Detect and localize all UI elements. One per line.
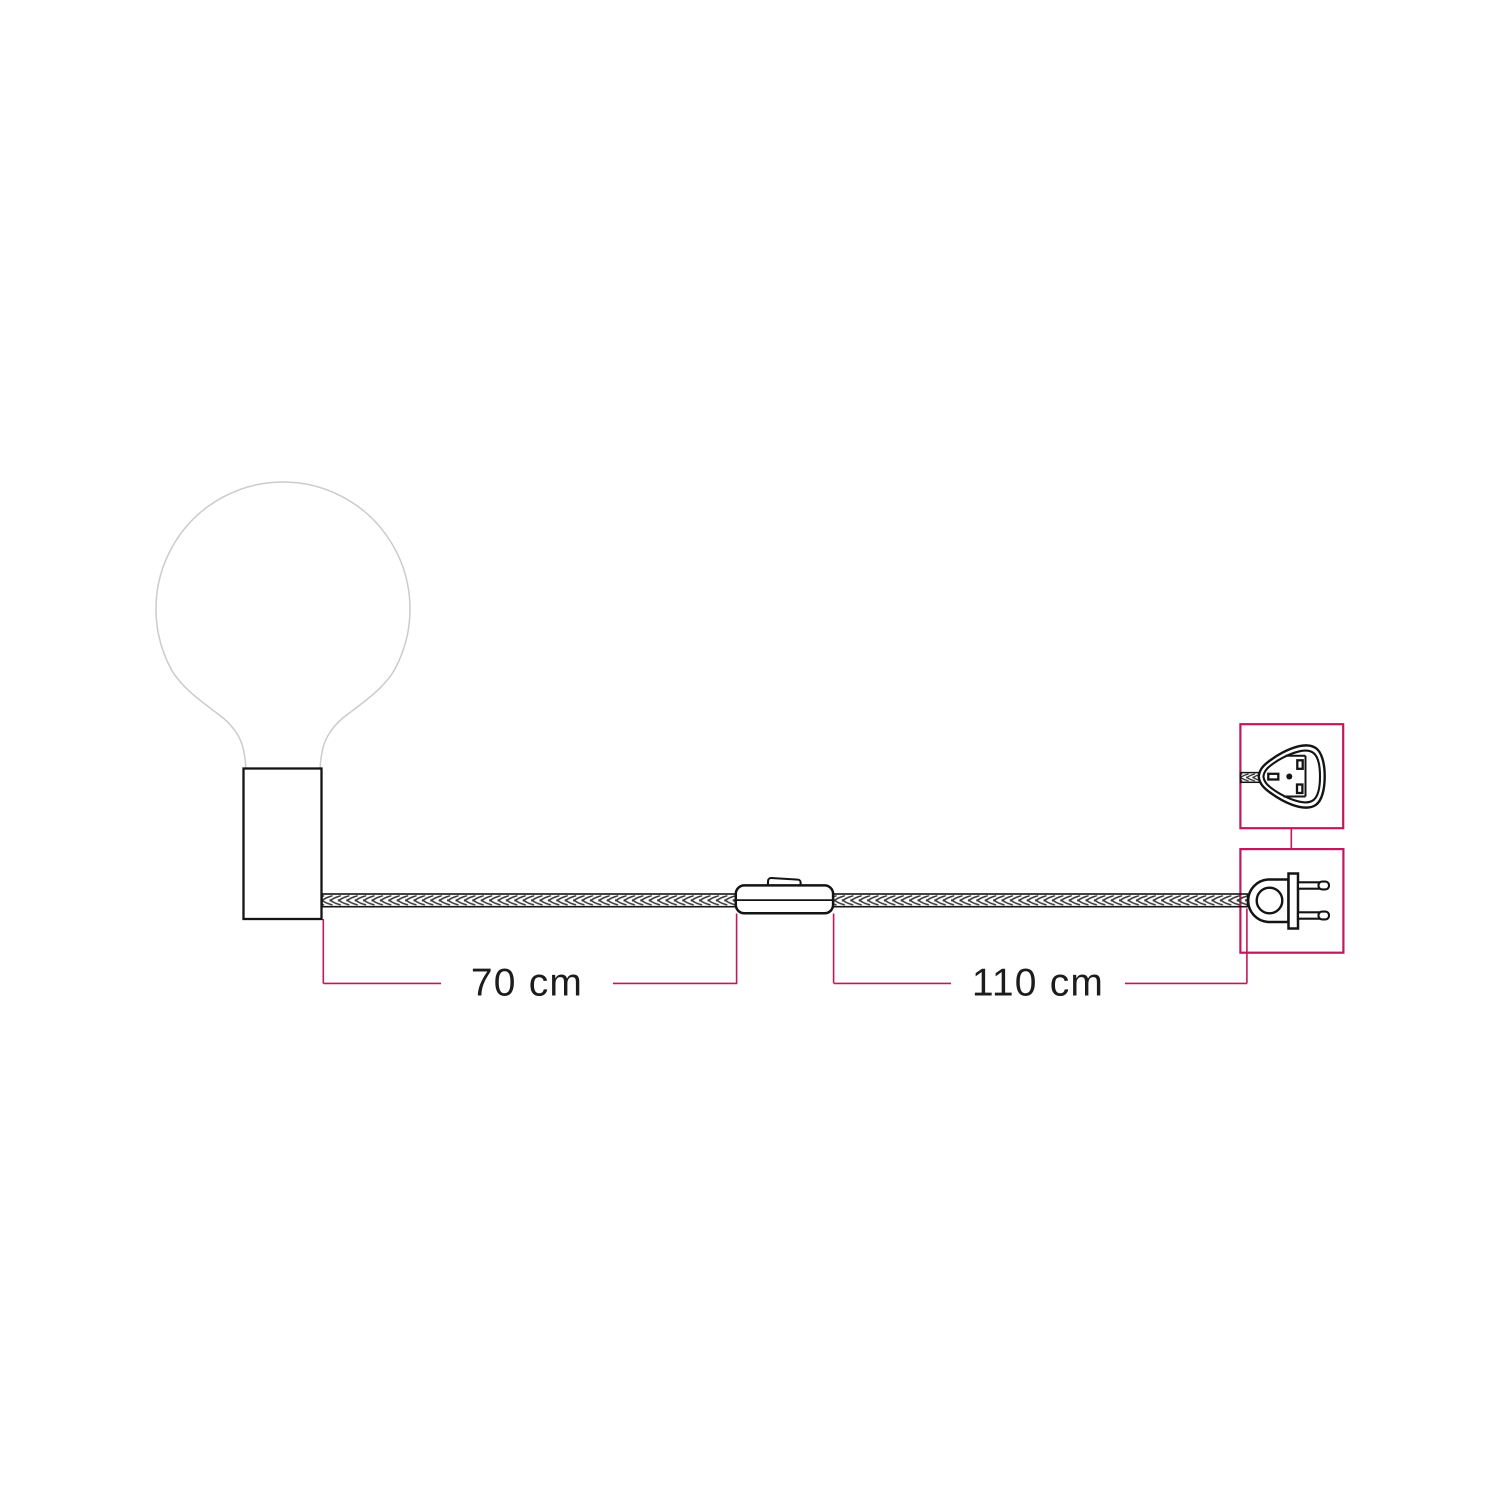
svg-text:110 cm: 110 cm [972,962,1104,1005]
svg-text:70 cm: 70 cm [471,962,583,1005]
